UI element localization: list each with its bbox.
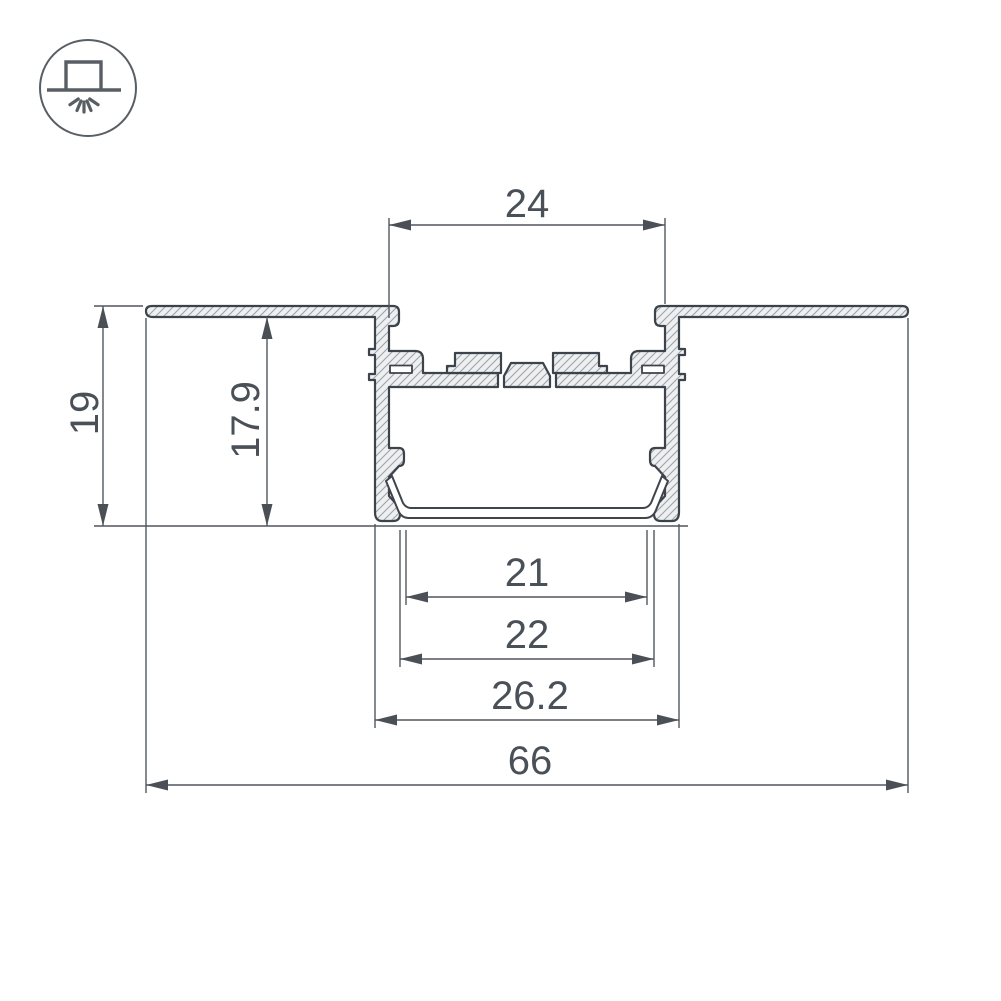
- icon-circle: [40, 40, 136, 136]
- arrowhead: [400, 654, 422, 665]
- profile-left-body: [146, 306, 498, 521]
- arrowhead: [625, 592, 647, 603]
- arrowhead: [146, 780, 168, 791]
- arrowhead: [643, 220, 665, 231]
- arrowhead: [657, 715, 679, 726]
- arrowhead: [98, 504, 109, 526]
- technical-drawing-page: 24 19 17.9 21: [0, 0, 1001, 1001]
- dimension-lens-inner-width: 21: [406, 530, 647, 605]
- profile-right-pad: [553, 353, 607, 373]
- dimension-value: 24: [505, 182, 550, 226]
- recessed-light-icon: [40, 40, 136, 136]
- profile-left-pad: [447, 353, 501, 373]
- arrowhead: [389, 220, 411, 231]
- arrowhead: [262, 317, 273, 339]
- diffuser-lens: [386, 476, 668, 518]
- dimension-value: 22: [505, 613, 550, 657]
- dimension-value: 26.2: [491, 674, 569, 718]
- profile-center-bridge: [504, 363, 550, 387]
- arrowhead: [406, 592, 428, 603]
- profile-drawing-canvas: 24 19 17.9 21: [0, 0, 1001, 1001]
- dimensions: 24 19 17.9 21: [63, 182, 908, 793]
- screw-slot-left: [390, 366, 412, 374]
- dimension-value: 21: [505, 551, 550, 595]
- arrowhead: [632, 654, 654, 665]
- arrowhead: [262, 504, 273, 526]
- arrowhead: [375, 715, 397, 726]
- dimension-top-opening: 24: [389, 182, 665, 318]
- arrowhead: [98, 306, 109, 328]
- screw-slot-right: [642, 366, 664, 374]
- dimension-value: 66: [508, 739, 553, 783]
- icon-light-rays: [70, 99, 98, 112]
- arrowhead: [886, 780, 908, 791]
- dimension-value: 17.9: [224, 381, 268, 459]
- dimension-inner-depth: 17.9: [224, 317, 273, 526]
- icon-fixture-box: [66, 62, 101, 90]
- dimension-value: 19: [63, 391, 107, 436]
- profile-right-body: [556, 306, 908, 521]
